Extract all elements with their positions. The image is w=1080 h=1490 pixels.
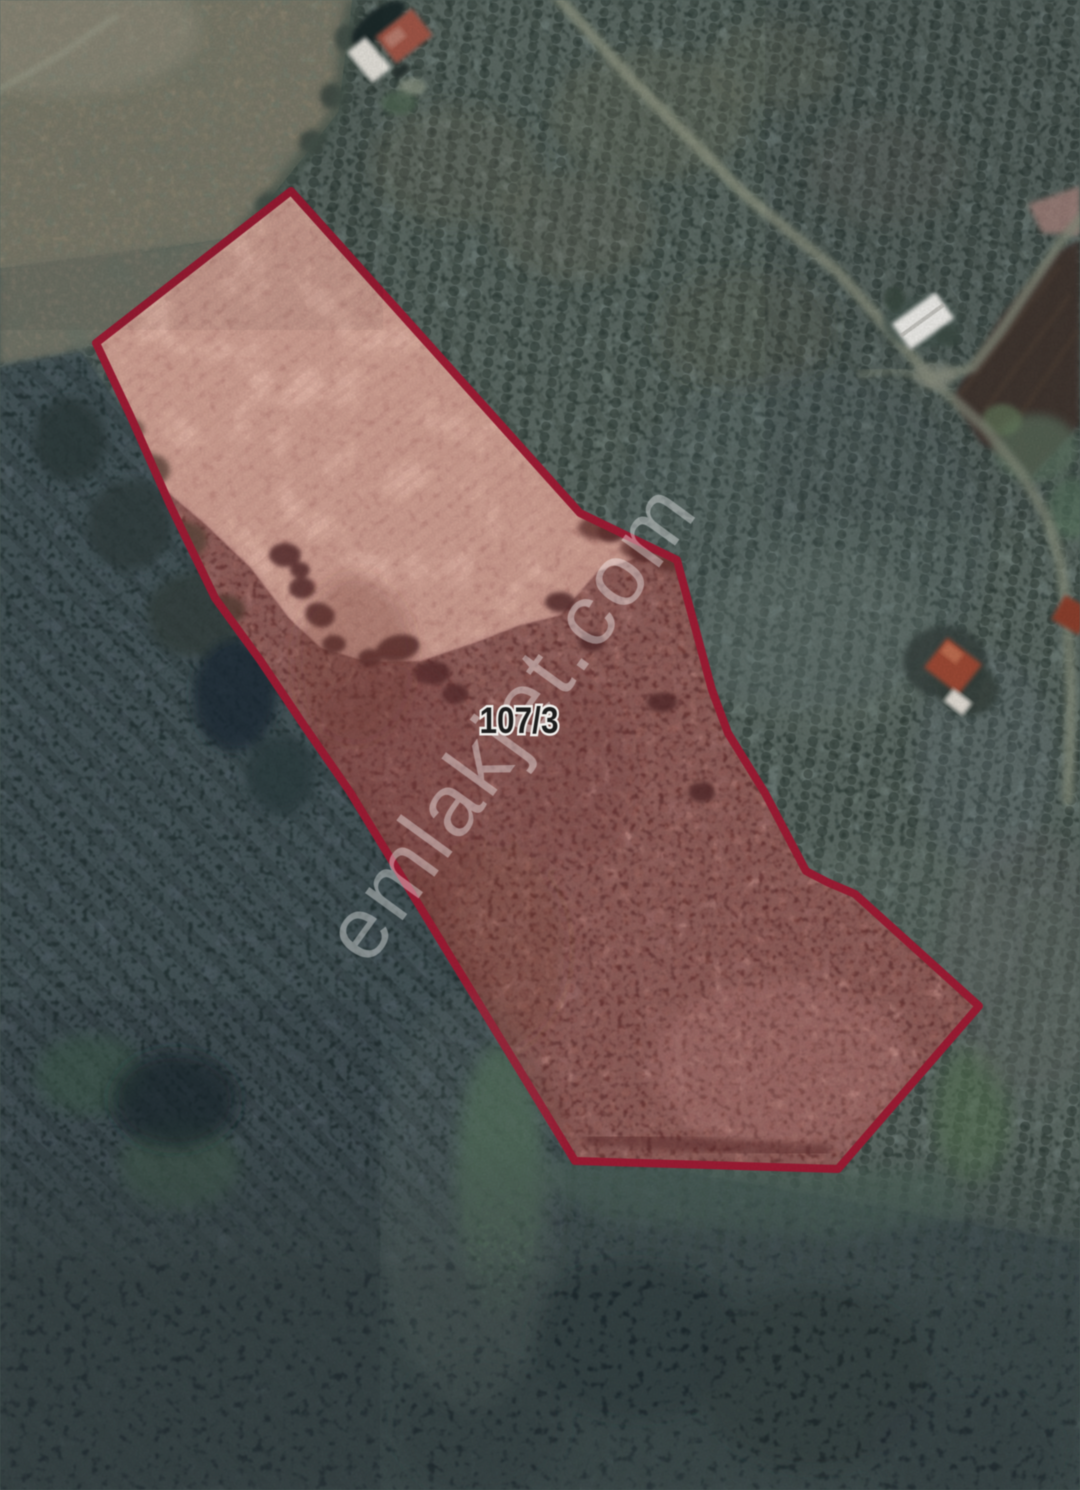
svg-text:107/3: 107/3 [480,700,559,741]
